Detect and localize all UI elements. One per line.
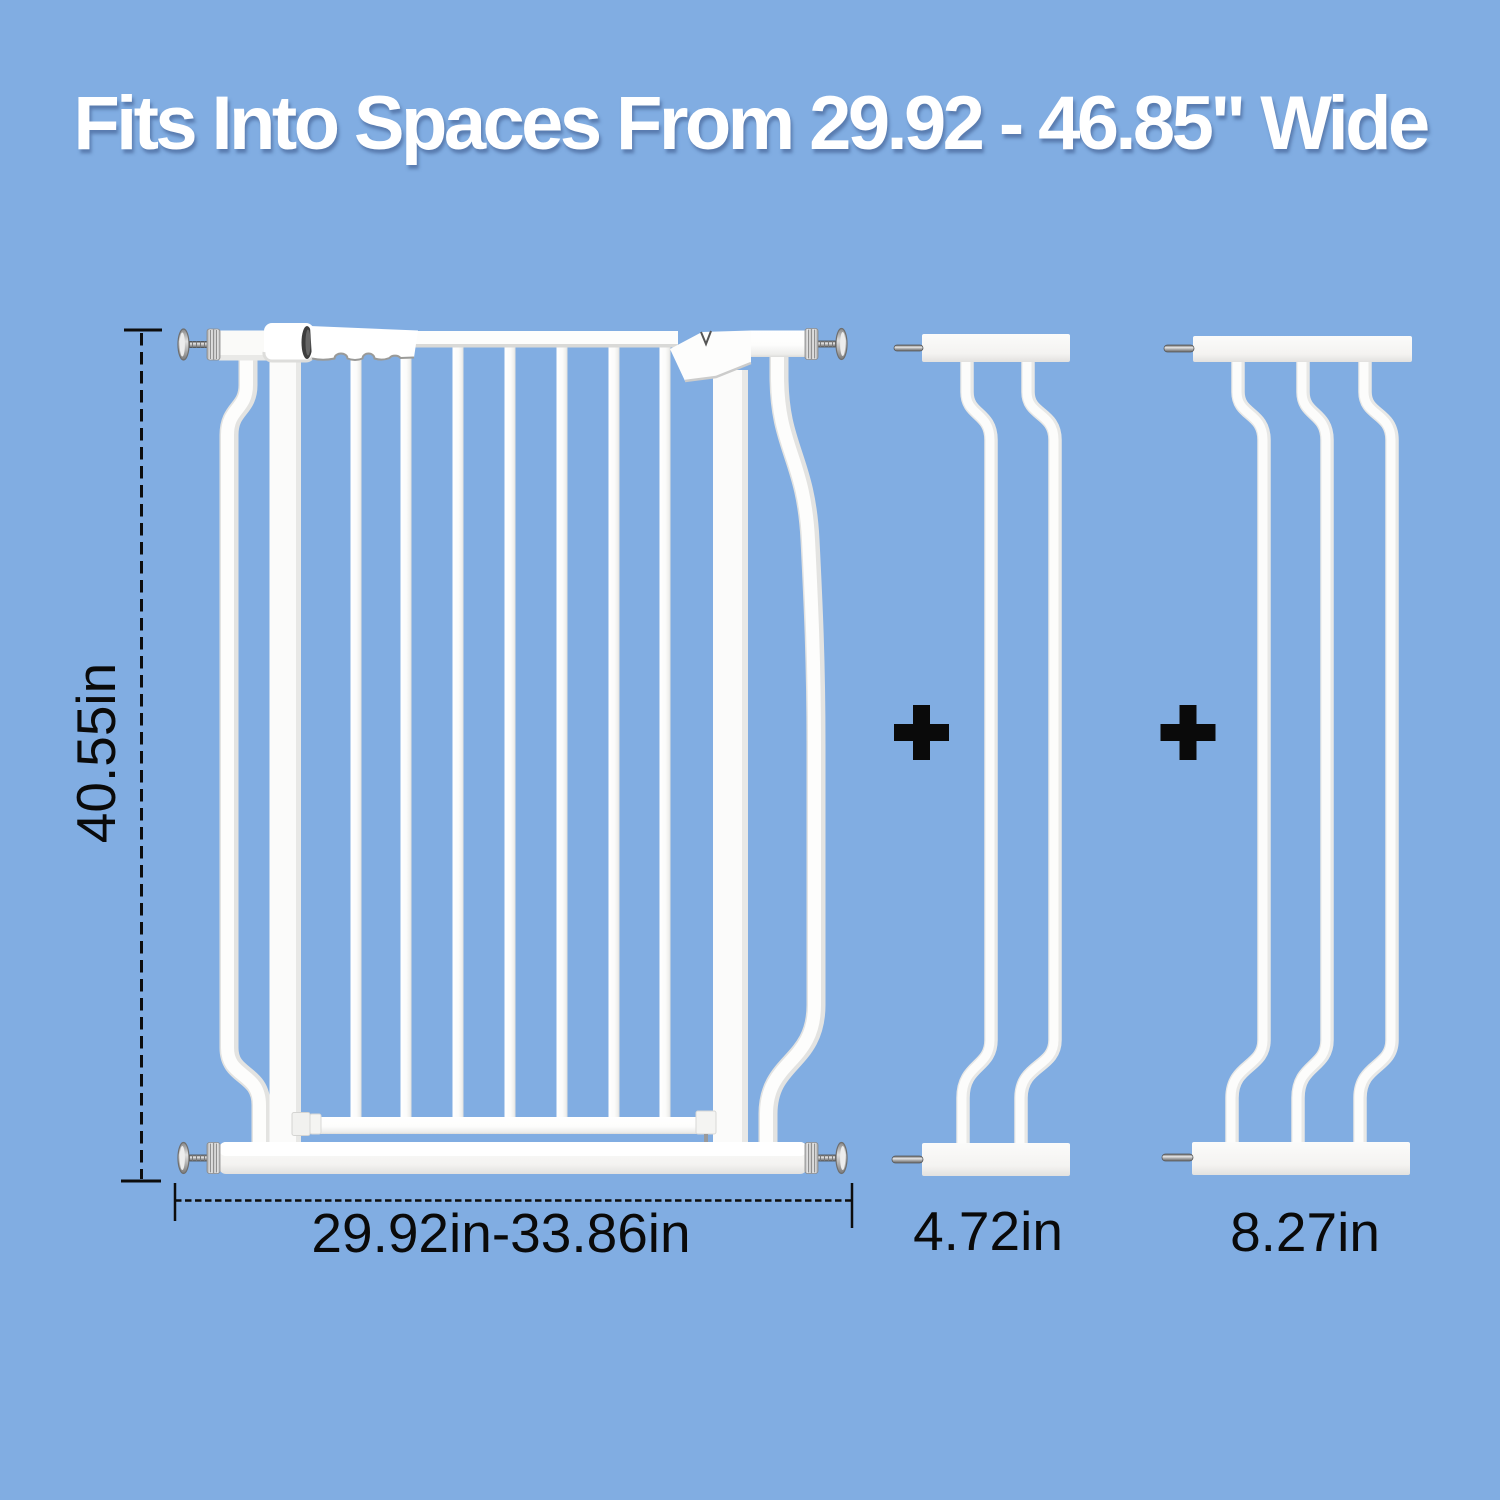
svg-text:8.27in: 8.27in [1230, 1201, 1380, 1263]
svg-text:40.55in: 40.55in [65, 663, 127, 843]
svg-text:29.92in-33.86in: 29.92in-33.86in [311, 1202, 690, 1264]
svg-text:4.72in: 4.72in [913, 1200, 1063, 1262]
